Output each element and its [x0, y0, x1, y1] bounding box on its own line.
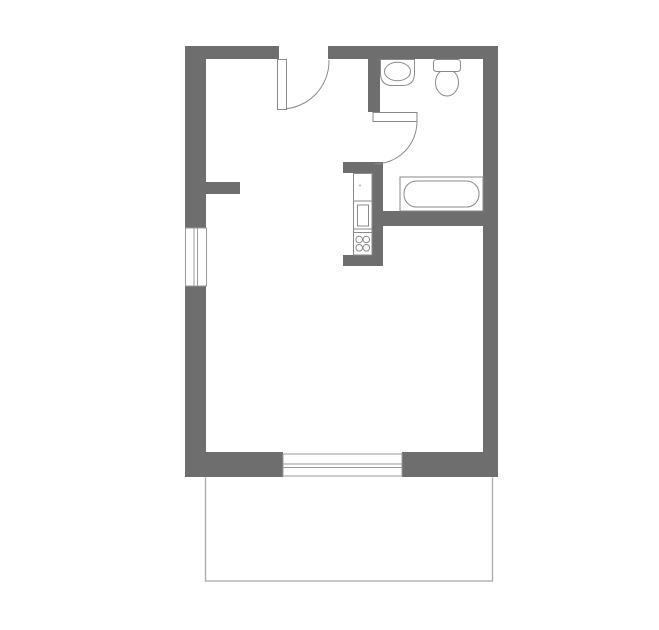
stove-burner	[363, 245, 370, 252]
toilet-bowl	[436, 69, 459, 96]
sink-bowl	[385, 62, 411, 80]
bathroom-door	[373, 113, 417, 165]
wall-right	[483, 46, 498, 477]
wall-bottom-right	[402, 452, 498, 477]
stove-burner	[356, 245, 363, 252]
window-left	[186, 228, 207, 286]
wall-bathroom-partition	[368, 59, 380, 112]
bathroom-door-leaf	[373, 113, 417, 122]
toilet	[434, 60, 461, 97]
entrance-door	[278, 60, 330, 110]
wall-top-right	[328, 46, 498, 59]
stove-burner	[363, 236, 370, 243]
kitchen-counter	[354, 174, 373, 256]
bathtub	[400, 177, 483, 211]
wall-left-return-stub	[206, 182, 240, 194]
toilet-tank	[434, 60, 461, 72]
kitchen-unit	[354, 174, 373, 256]
counter-detail-dot	[359, 185, 361, 187]
bathroom-door-swing-arc	[375, 122, 418, 165]
wall-kitchen-vertical	[372, 162, 383, 266]
window-left-frame	[186, 228, 207, 286]
floor-plan-svg	[0, 0, 659, 630]
sink	[381, 60, 415, 86]
floor-plan-canvas	[0, 0, 659, 630]
balcony-outline	[206, 478, 493, 582]
wall-bathtub-partition	[383, 211, 498, 226]
window-bottom-frame	[283, 454, 402, 476]
window-bottom	[283, 454, 402, 476]
stove-burner	[356, 236, 363, 243]
balcony	[206, 478, 493, 582]
walls	[185, 46, 498, 477]
entrance-door-leaf	[278, 60, 287, 110]
wall-left-upper	[185, 46, 206, 228]
wall-kitchen-bottom-stub	[343, 255, 383, 266]
wall-left-lower	[185, 286, 206, 477]
wall-bottom-left	[185, 452, 283, 477]
entrance-door-swing-arc	[282, 60, 329, 109]
